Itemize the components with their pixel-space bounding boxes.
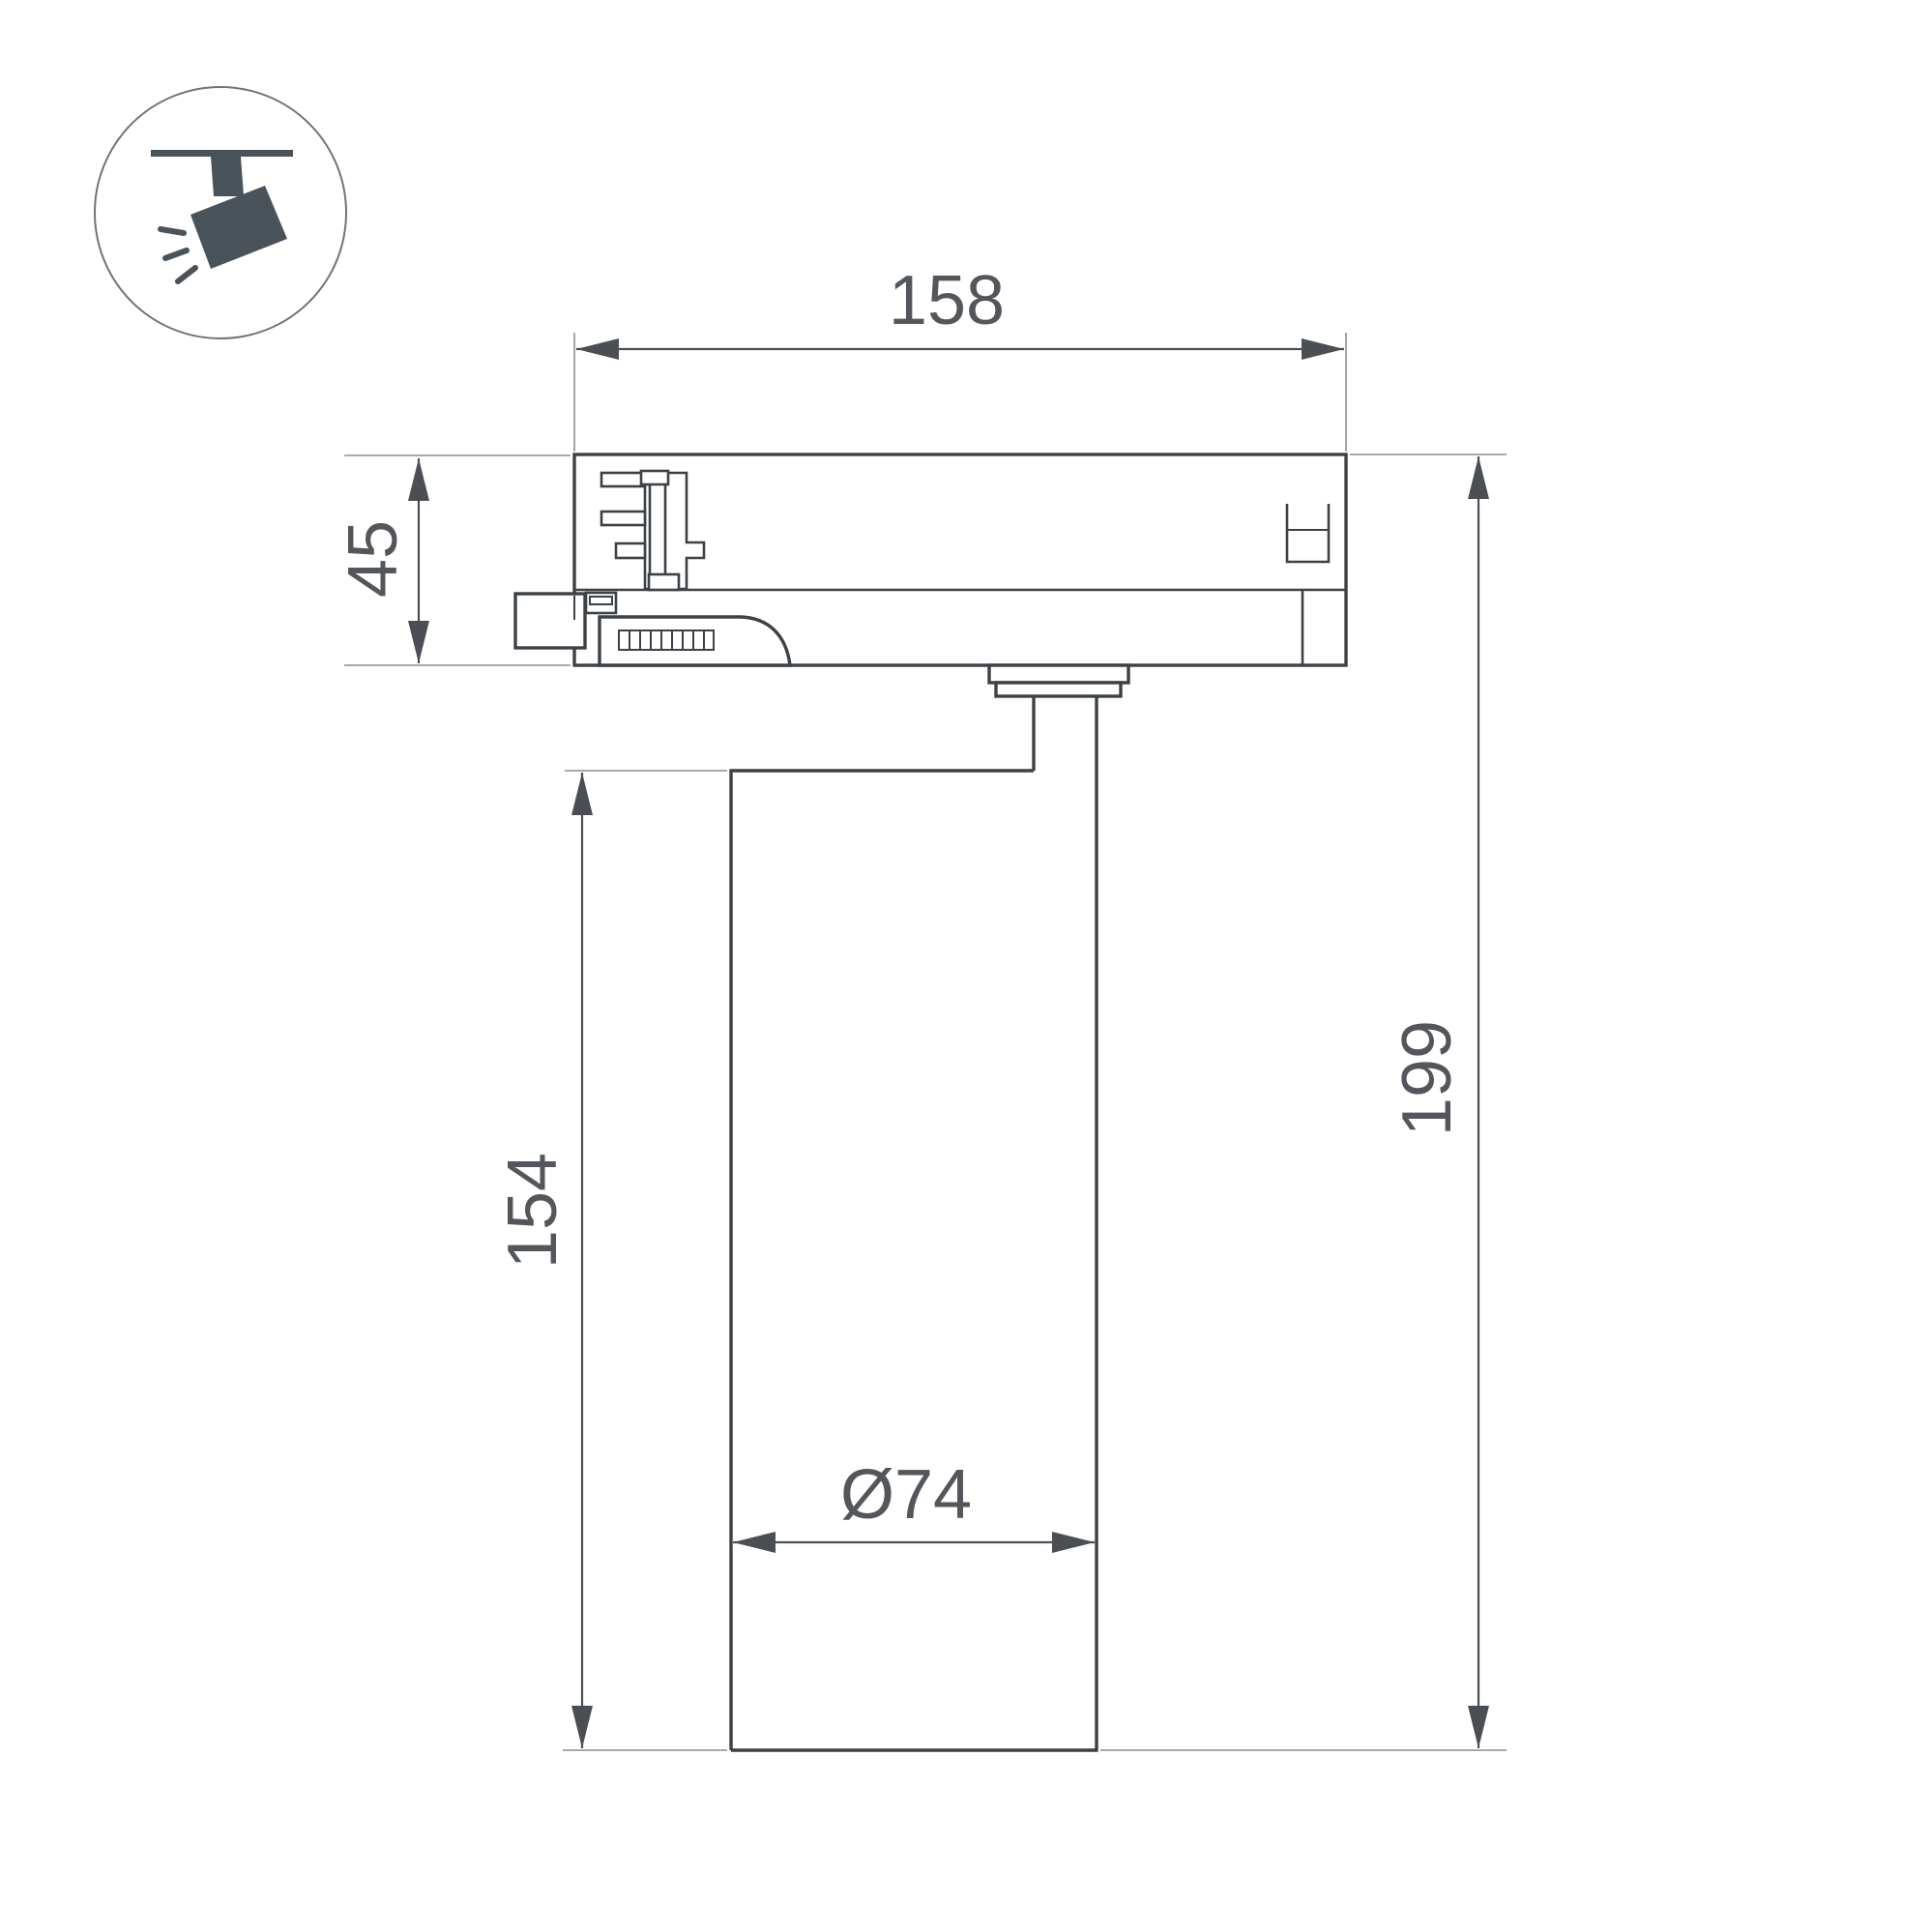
- dimension-drawing-page: 158 45 154 199: [0, 0, 1932, 1932]
- contact-pin: [650, 483, 665, 575]
- dim-adapter-width: 158: [574, 262, 1346, 452]
- contact-pin-cap: [641, 471, 668, 484]
- mount-flange-lower: [996, 683, 1121, 696]
- lamp-cylinder-outline: [731, 771, 1034, 1750]
- arrowhead: [1052, 1532, 1095, 1553]
- arrowhead: [1302, 338, 1344, 360]
- contact-pin-foot: [649, 574, 679, 590]
- arrowhead: [733, 1532, 776, 1553]
- contact-tab-3: [616, 543, 645, 558]
- arrowhead: [1468, 456, 1489, 499]
- lamp-cylinder-outline: [731, 696, 1097, 1750]
- dimension-label: 199: [1389, 1020, 1466, 1136]
- lamp-body-drawing: [731, 665, 1128, 1750]
- track-adapter-drawing: [515, 454, 1346, 665]
- arrowhead: [571, 773, 593, 815]
- icon-ceiling-bar: [151, 150, 293, 157]
- arrowhead: [408, 458, 429, 501]
- arrowhead: [576, 338, 619, 360]
- locking-lever: [600, 617, 790, 665]
- icon-light-ray: [161, 229, 184, 233]
- dim-body-height: 154: [494, 771, 727, 1750]
- arrowhead: [408, 621, 429, 663]
- dimension-label: 45: [335, 520, 412, 598]
- dim-body-diameter: Ø74: [733, 1456, 1095, 1553]
- icon-mount-stem: [211, 157, 244, 196]
- contact-tab-2: [601, 512, 645, 525]
- contact-tab-1: [601, 473, 645, 486]
- dimension-label: 158: [889, 262, 1005, 339]
- dimension-label: 154: [494, 1153, 571, 1269]
- arrowhead: [571, 1706, 593, 1748]
- track-spotlight-icon: [95, 87, 346, 338]
- mount-flange-upper: [989, 665, 1128, 683]
- drawing-svg: 158 45 154 199: [0, 0, 1932, 1932]
- arrowhead: [1468, 1706, 1489, 1748]
- latch-inner: [590, 597, 612, 604]
- dimension-label: Ø74: [840, 1456, 972, 1534]
